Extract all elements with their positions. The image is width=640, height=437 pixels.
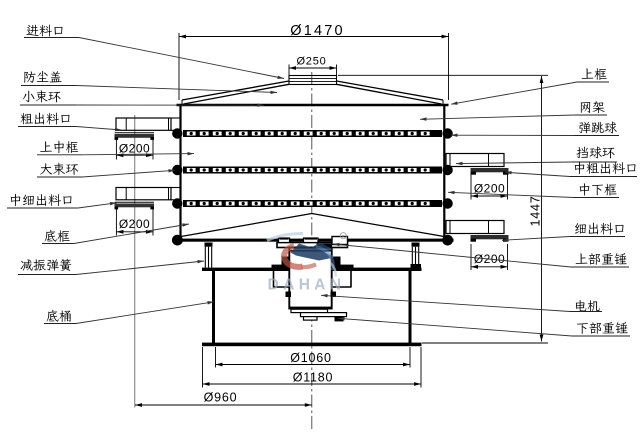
svg-text:Ø200: Ø200 <box>119 217 150 231</box>
svg-text:Ø1180: Ø1180 <box>293 370 334 384</box>
svg-text:Ø200: Ø200 <box>119 142 150 156</box>
svg-text:Ø1470: Ø1470 <box>290 23 345 39</box>
svg-text:1447: 1447 <box>528 195 542 226</box>
svg-text:Ø960: Ø960 <box>204 391 238 405</box>
svg-text:Ø250: Ø250 <box>296 56 326 68</box>
svg-text:DAHAN: DAHAN <box>268 277 346 294</box>
svg-text:Ø1060: Ø1060 <box>290 351 332 365</box>
